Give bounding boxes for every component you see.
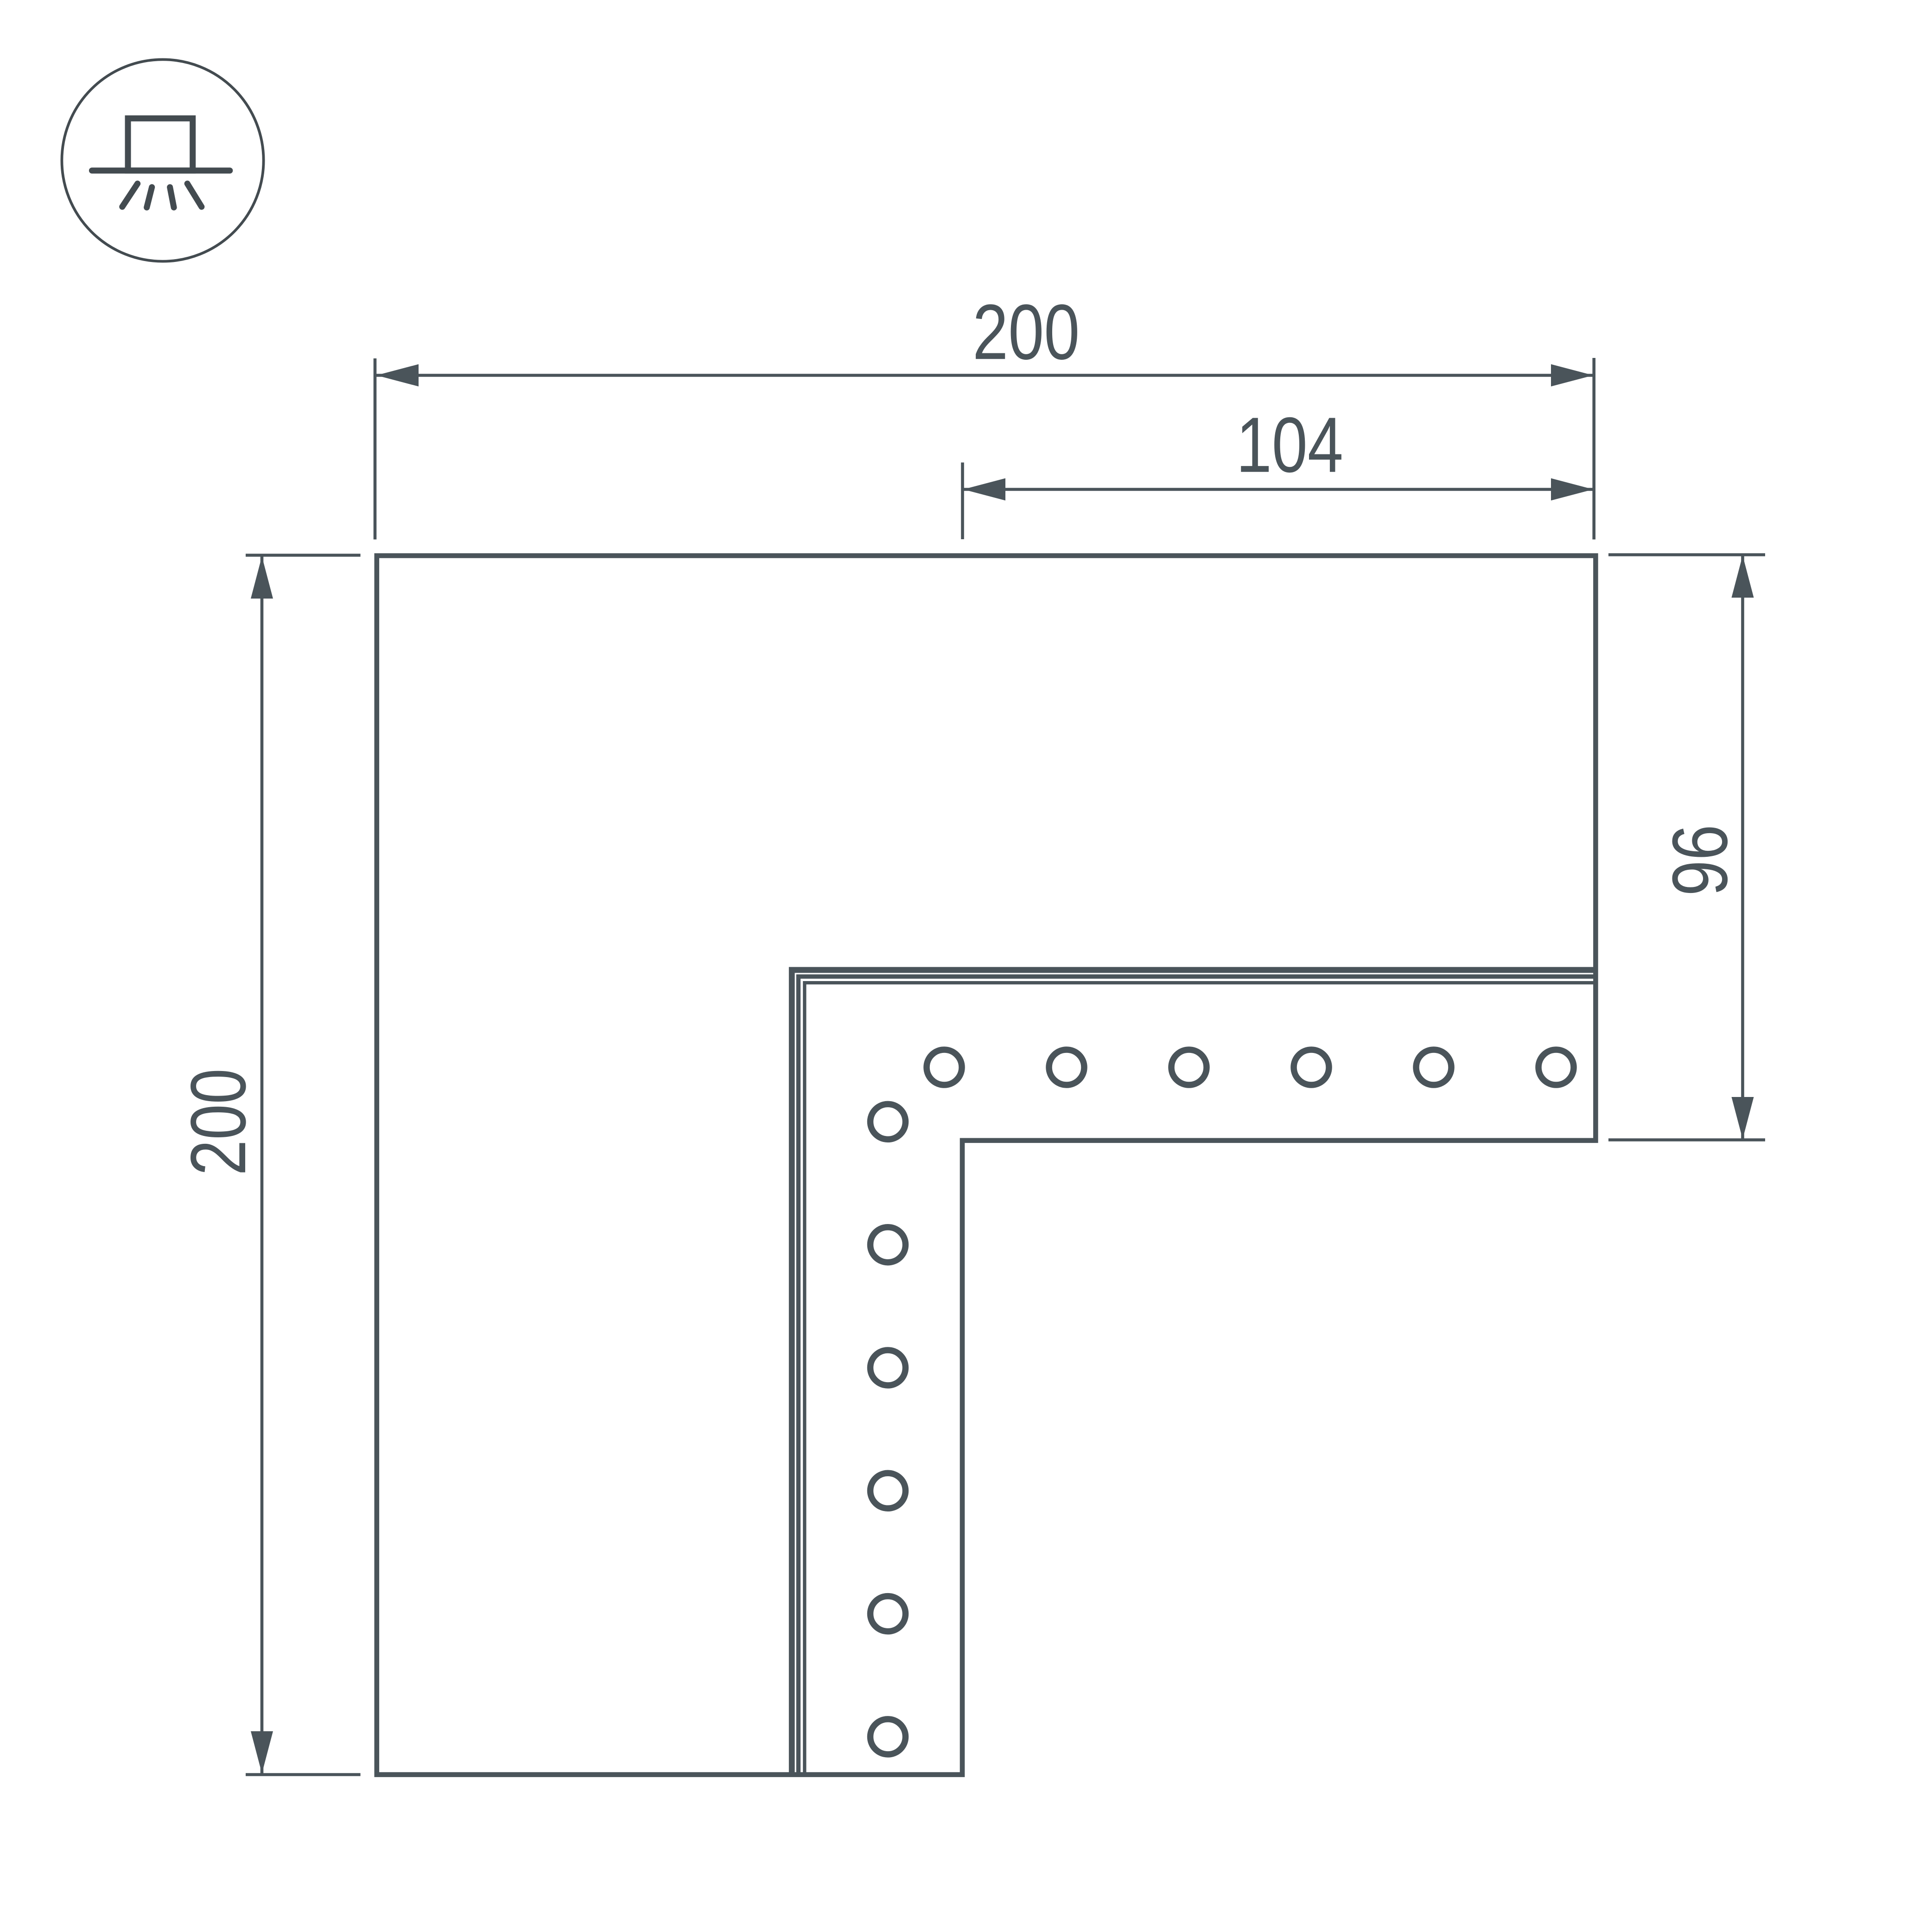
svg-text:96: 96 [1656, 824, 1743, 896]
svg-text:104: 104 [1236, 401, 1343, 489]
svg-text:200: 200 [174, 1068, 262, 1175]
svg-text:200: 200 [972, 288, 1080, 376]
